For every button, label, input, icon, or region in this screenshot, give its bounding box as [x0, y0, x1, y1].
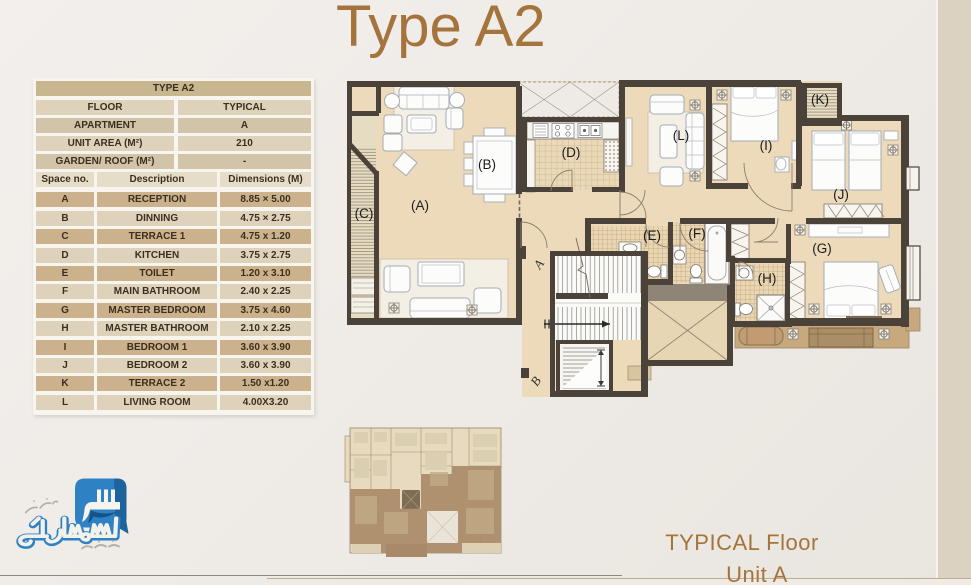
- svg-text:(F): (F): [688, 226, 705, 241]
- svg-text:(A): (A): [411, 198, 429, 213]
- svg-text:(C): (C): [355, 206, 374, 221]
- svg-text:(K): (K): [811, 92, 829, 107]
- svg-text:(E): (E): [643, 228, 661, 243]
- svg-text:(B): (B): [478, 157, 496, 172]
- svg-text:(G): (G): [812, 241, 832, 256]
- svg-text:(I): (I): [760, 138, 773, 153]
- svg-text:(J): (J): [833, 187, 849, 202]
- svg-text:(L): (L): [673, 128, 690, 143]
- svg-text:(D): (D): [562, 145, 581, 160]
- svg-text:(H): (H): [758, 271, 777, 286]
